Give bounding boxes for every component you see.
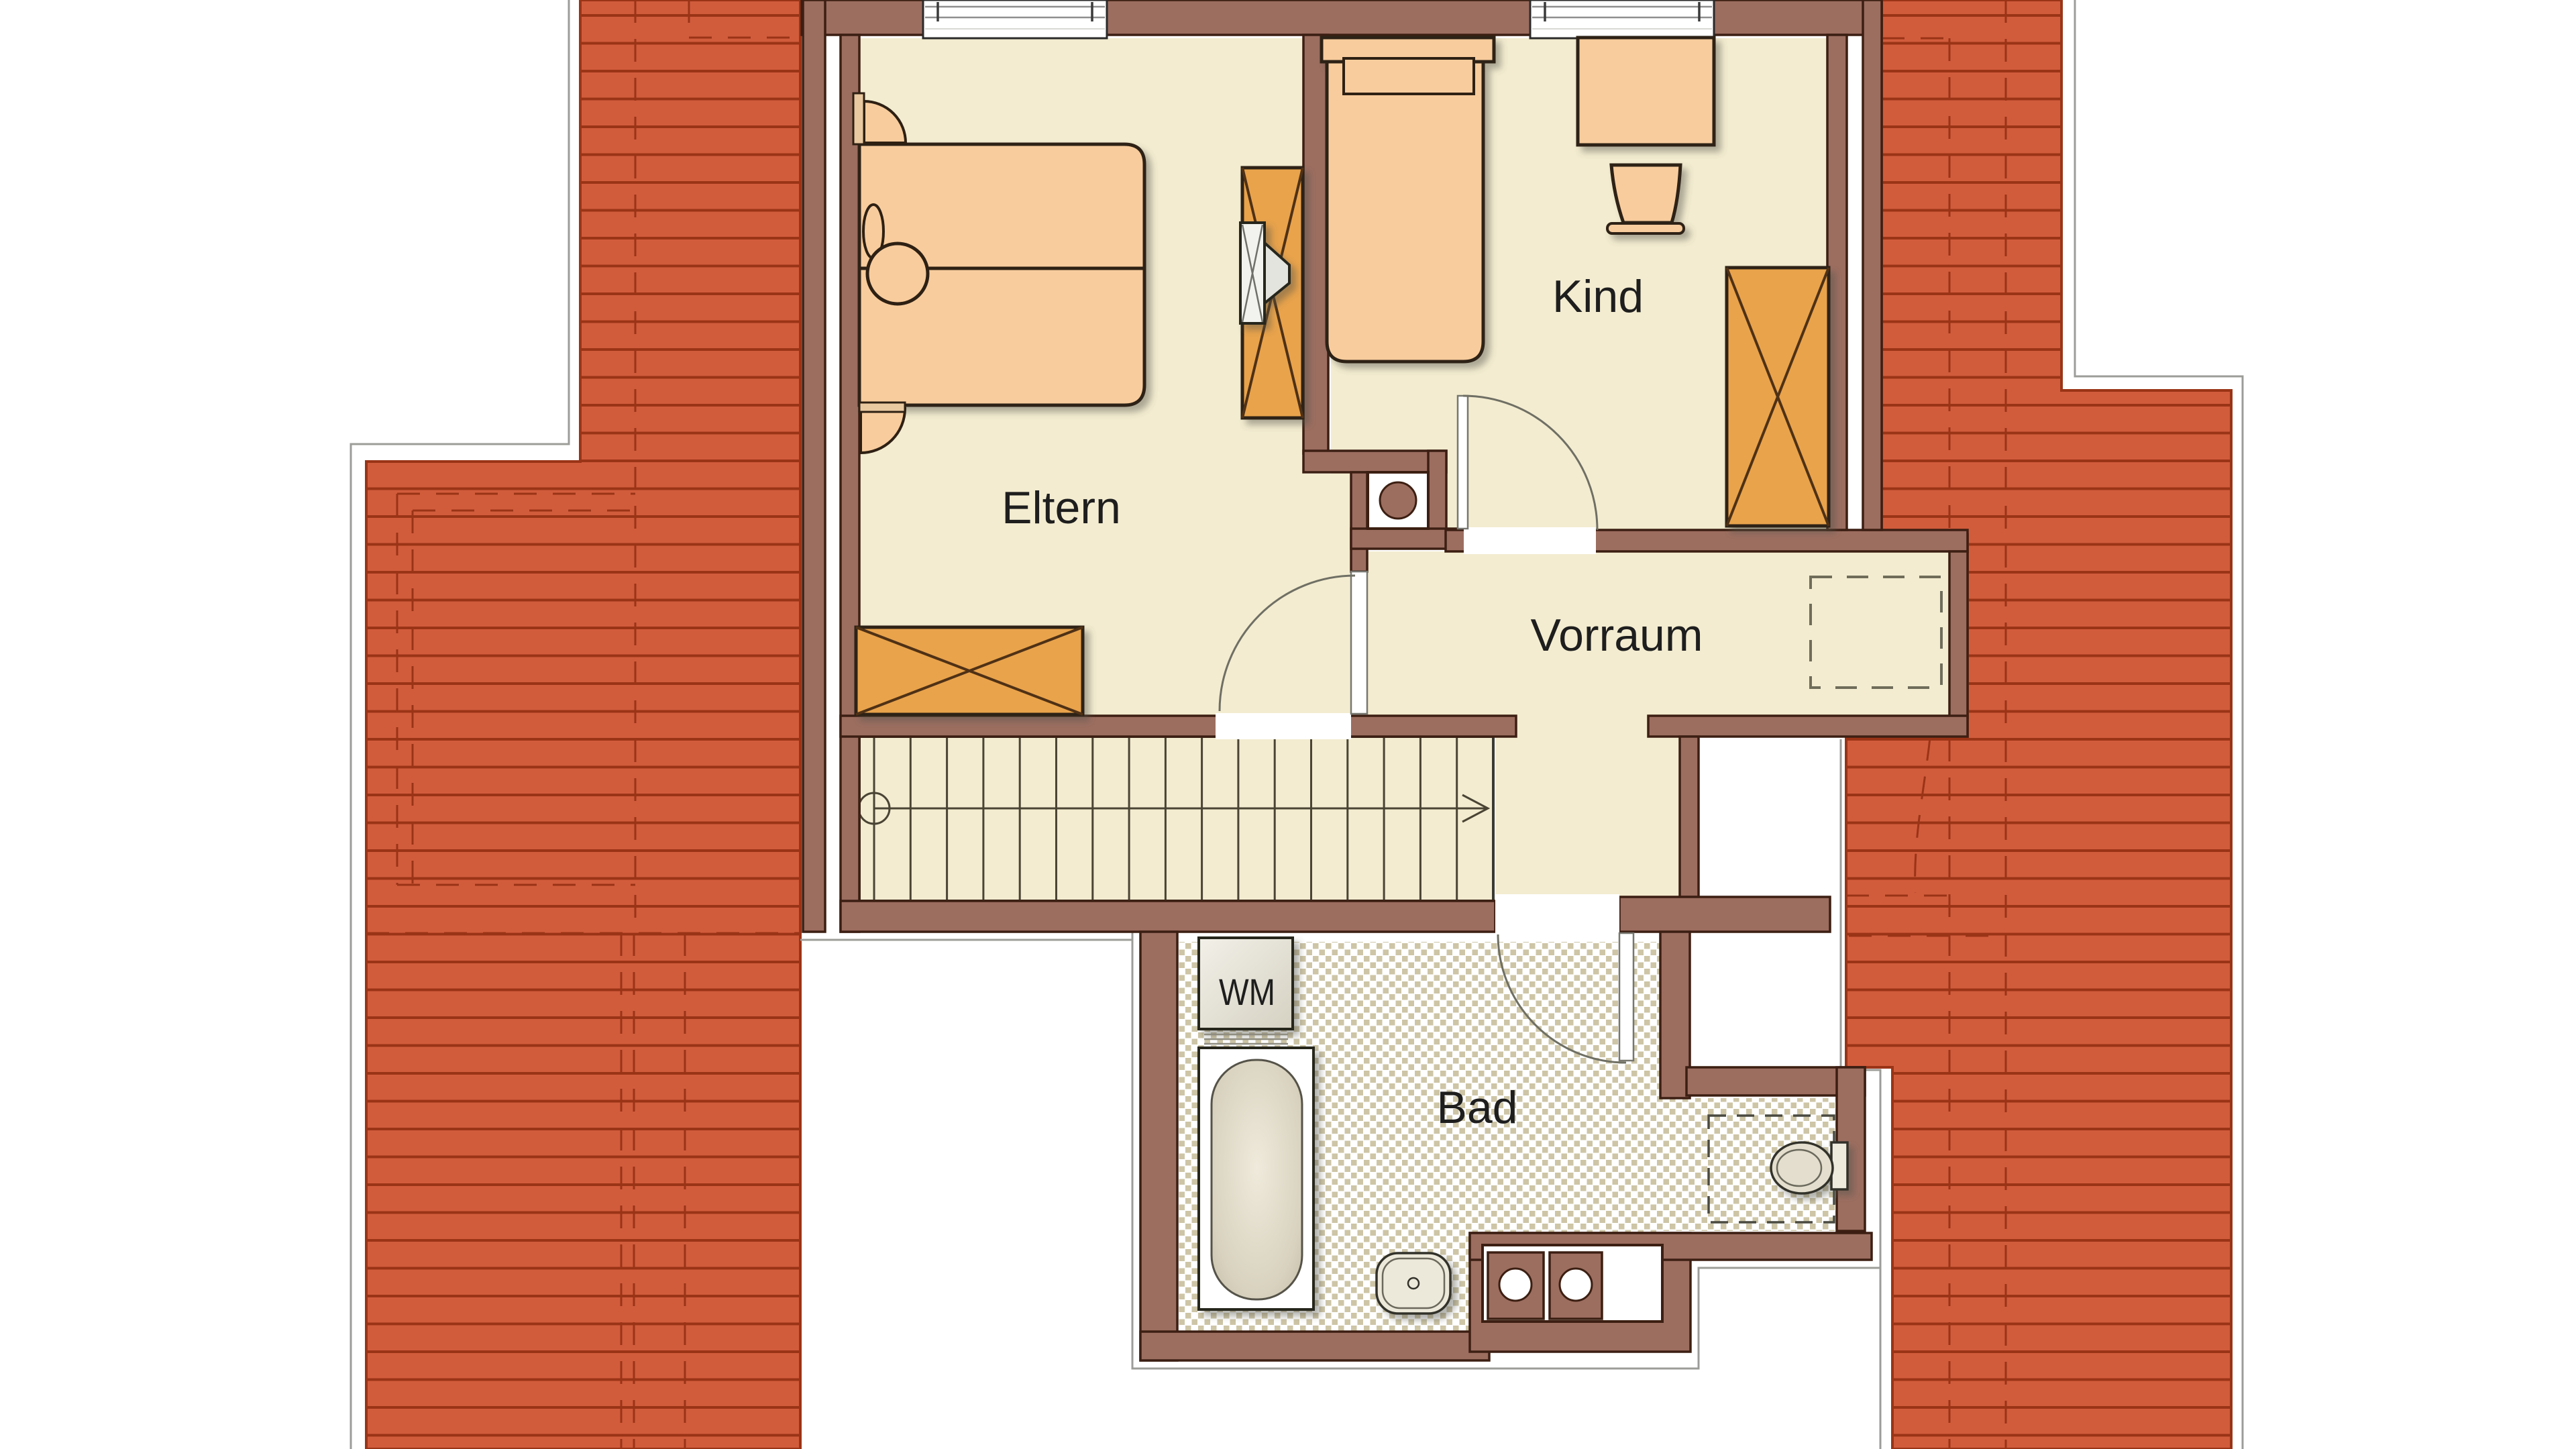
svg-text:Vorraum: Vorraum [1531, 610, 1703, 661]
svg-text:Bad: Bad [1437, 1082, 1518, 1133]
svg-text:Kind: Kind [1552, 271, 1644, 322]
svg-text:WM: WM [1219, 971, 1275, 1013]
svg-text:Eltern: Eltern [1002, 482, 1121, 533]
